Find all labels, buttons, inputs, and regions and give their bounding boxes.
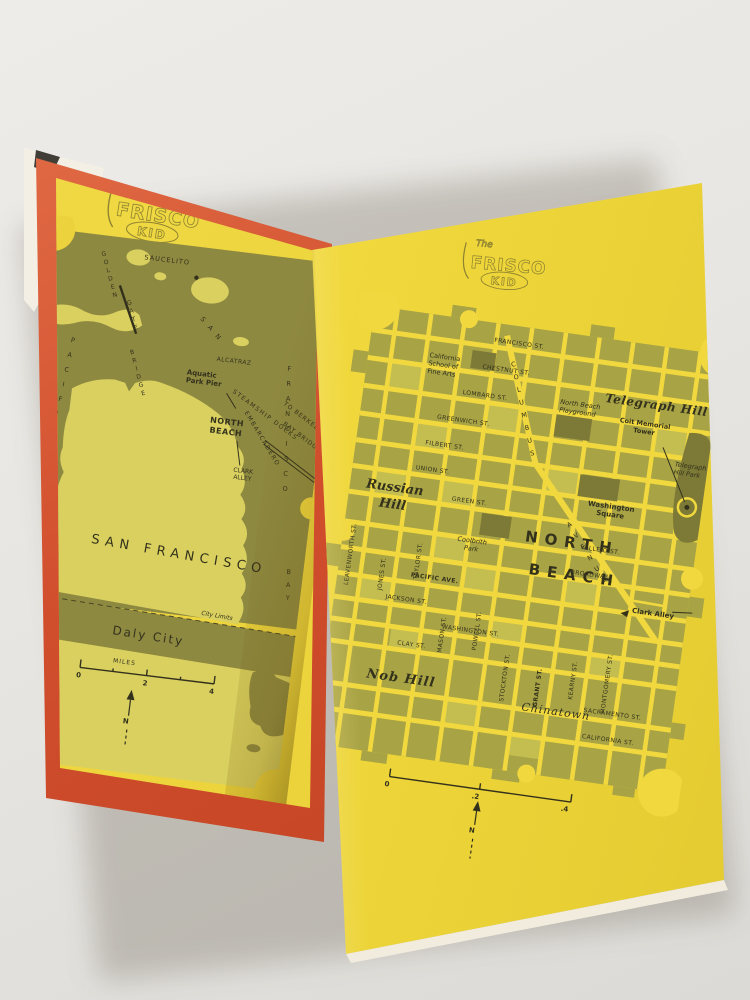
frisco-kid-logo-right: The FRISCO KID [447, 230, 558, 297]
logo-the: The [476, 239, 494, 250]
logo-graphic: The FRISCO KID [447, 230, 558, 297]
label-school-of-fine-arts: California School of Fine Arts [427, 352, 461, 379]
photo-background: The FRISCO KID [0, 0, 750, 1000]
compass-n-label: N [468, 826, 475, 835]
logo-kid: KID [490, 274, 518, 289]
scale-tick-02: .2 [471, 792, 480, 801]
coolbrith-park-block [479, 513, 512, 539]
corner-scallop [0, 731, 13, 780]
scale-tick-4: 4 [209, 687, 215, 696]
scale-tick-04: .4 [560, 805, 569, 814]
scale-tick-0: 0 [76, 671, 82, 680]
scale-tick-2: 2 [142, 679, 148, 688]
compass-n-label: N [122, 717, 129, 726]
label-ocean: OCEAN [20, 519, 40, 579]
scale-tick-0: 0 [384, 780, 390, 789]
